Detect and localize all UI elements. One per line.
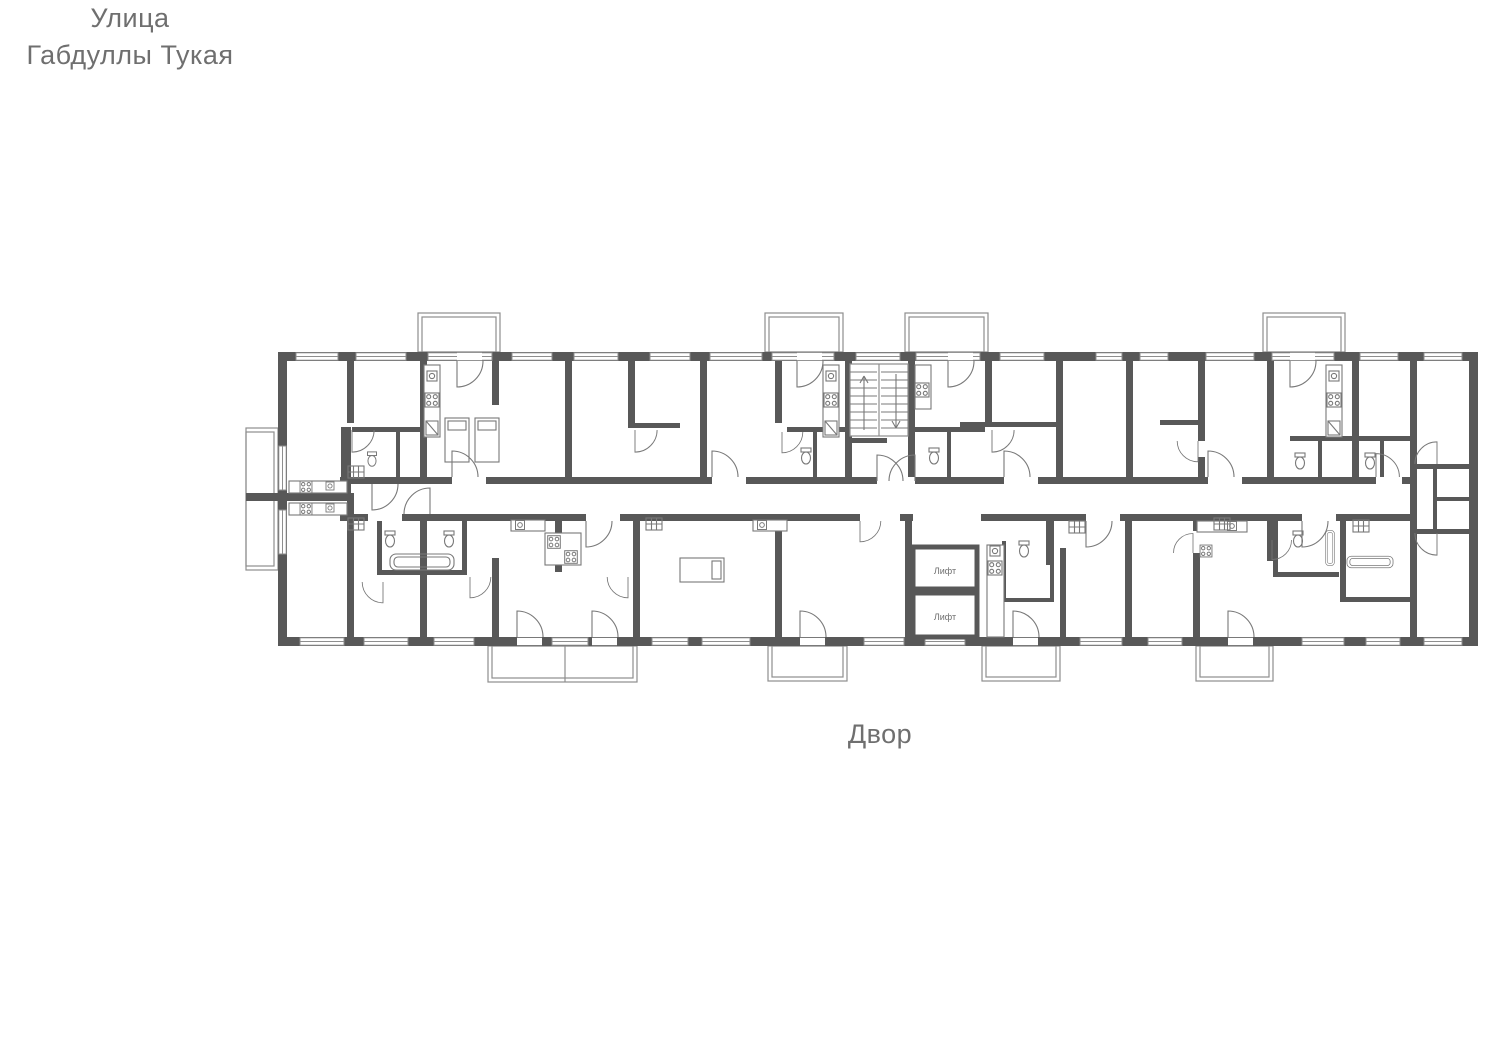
staircase	[850, 364, 908, 436]
bed-icons	[445, 418, 724, 582]
bathtub-icons	[390, 530, 1393, 570]
toilet-icons	[368, 448, 1376, 557]
elevator-label-1: Лифт	[934, 566, 956, 576]
corridor-walls	[340, 477, 1412, 521]
balconies	[246, 313, 1345, 682]
floor-plan-page: Улица Габдуллы Тукая Двор	[0, 0, 1500, 1060]
floor-plan: Лифт Лифт	[0, 0, 1500, 1060]
elevators: Лифт Лифт	[913, 547, 977, 637]
elevator-label-2: Лифт	[934, 612, 956, 622]
kitchen-counters	[289, 365, 1342, 637]
interior-walls-bottom	[287, 464, 1478, 637]
